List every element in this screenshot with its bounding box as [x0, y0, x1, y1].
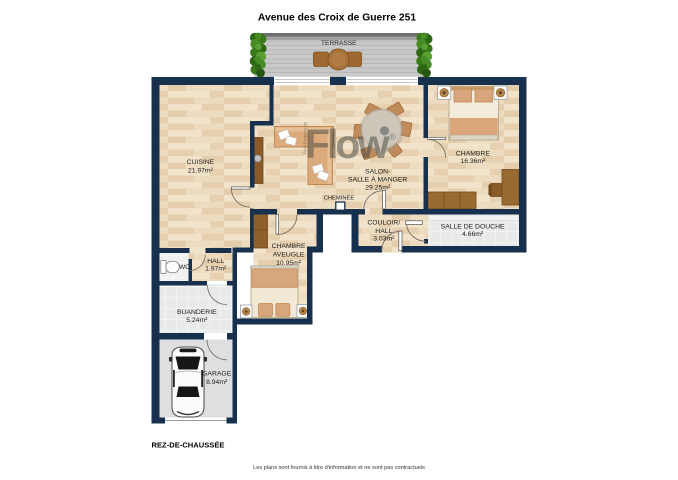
svg-text:21.97m²: 21.97m² [188, 167, 214, 174]
svg-text:®: ® [389, 132, 396, 143]
svg-text:SALON-: SALON- [365, 168, 390, 175]
svg-text:Flow: Flow [305, 121, 389, 167]
svg-text:BUANDERIE: BUANDERIE [177, 309, 217, 316]
svg-text:CHAMBRE: CHAMBRE [272, 243, 306, 250]
svg-text:HALL: HALL [375, 228, 392, 235]
svg-text:AVEUGLE: AVEUGLE [273, 252, 305, 259]
svg-text:HALL: HALL [207, 258, 224, 265]
svg-text:Avenue des Croix de Guerre 251: Avenue des Croix de Guerre 251 [258, 13, 416, 24]
svg-text:SALLE À MANGER: SALLE À MANGER [348, 174, 407, 183]
svg-text:Les plans sont fournis à titre: Les plans sont fournis à titre d'informa… [253, 465, 425, 471]
svg-text:8.94m²: 8.94m² [206, 379, 228, 386]
svg-text:16.36m²: 16.36m² [460, 158, 486, 165]
svg-text:CUISINE: CUISINE [187, 159, 215, 166]
svg-text:COULOIR/: COULOIR/ [367, 219, 400, 226]
svg-text:4.66m²: 4.66m² [462, 231, 484, 238]
svg-text:WC: WC [179, 264, 190, 271]
svg-text:REZ-DE-CHAUSSÉE: REZ-DE-CHAUSSÉE [152, 440, 225, 449]
svg-text:CHEMINÉE: CHEMINÉE [324, 195, 355, 202]
svg-text:GARAGE: GARAGE [202, 370, 232, 377]
svg-text:SALLE DE DOUCHE: SALLE DE DOUCHE [441, 223, 505, 230]
svg-text:3.03m²: 3.03m² [373, 236, 395, 243]
svg-text:5.24m²: 5.24m² [186, 317, 208, 324]
svg-text:Real Property by: Real Property by [303, 121, 308, 154]
svg-text:1.97m²: 1.97m² [205, 265, 227, 272]
svg-text:CHAMBRE: CHAMBRE [456, 150, 490, 157]
svg-text:10.95m²: 10.95m² [276, 260, 302, 267]
svg-text:TERRASSE: TERRASSE [321, 40, 357, 47]
svg-text:29.25m²: 29.25m² [365, 184, 391, 191]
